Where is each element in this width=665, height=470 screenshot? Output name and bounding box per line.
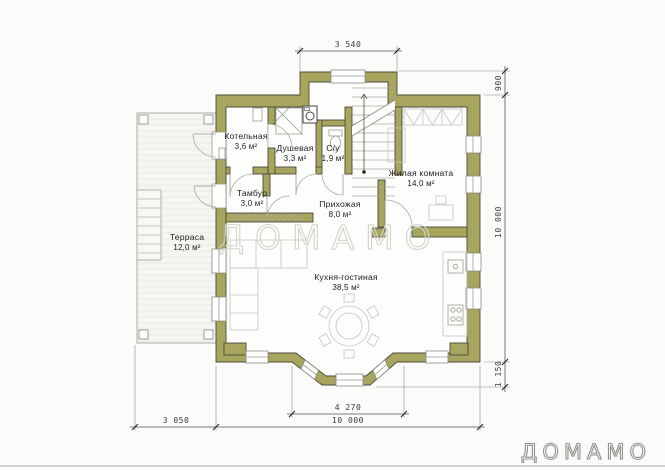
room-label-hall: Прихожая (319, 199, 361, 209)
room-label-shower: Душевая (276, 143, 313, 153)
terrace-deck (137, 113, 216, 343)
room-label-terrace: Терраса (170, 232, 204, 242)
room-area-terrace: 12,0 м² (173, 243, 200, 252)
room-area-shower: 3,3 м² (284, 154, 307, 163)
room-area-wc: 1,9 м² (322, 154, 345, 163)
room-label-wc: С/у (326, 143, 340, 153)
room-label-boiler: Котельная (224, 131, 268, 141)
room-label-kitchen: Кухня-гостиная (314, 272, 378, 282)
washing-machine (303, 106, 317, 123)
room-label-tambour: Тамбур (237, 188, 267, 198)
dim-top-width: 3 540 (335, 40, 362, 49)
floor-plan-page: Котельная 3,6 м² Душевая 3,3 м² С/у 1,9 … (0, 0, 665, 470)
dim-bay-width: 4 270 (335, 403, 362, 412)
terrace-steps (137, 190, 161, 260)
room-area-tambour: 3,0 м² (241, 199, 264, 208)
dim-bottom-width: 10 000 (332, 416, 364, 425)
watermark-text: ДОМАМО (218, 218, 441, 257)
footer-divider (0, 465, 665, 467)
dim-bottom-left: 3 050 (163, 416, 190, 425)
dim-right-bottom: 1 150 (494, 361, 503, 388)
room-label-living: Жилая комната (389, 168, 454, 178)
dim-right-top: 900 (494, 75, 503, 91)
dim-right-height: 10 000 (494, 206, 503, 238)
floor-plan-drawing: Котельная 3,6 м² Душевая 3,3 м² С/у 1,9 … (0, 0, 665, 470)
room-area-kitchen: 38,5 м² (332, 283, 359, 292)
brand-logo: ДОМАМО (521, 440, 651, 464)
room-area-boiler: 3,6 м² (235, 142, 258, 151)
room-area-living: 14,0 м² (407, 179, 434, 188)
